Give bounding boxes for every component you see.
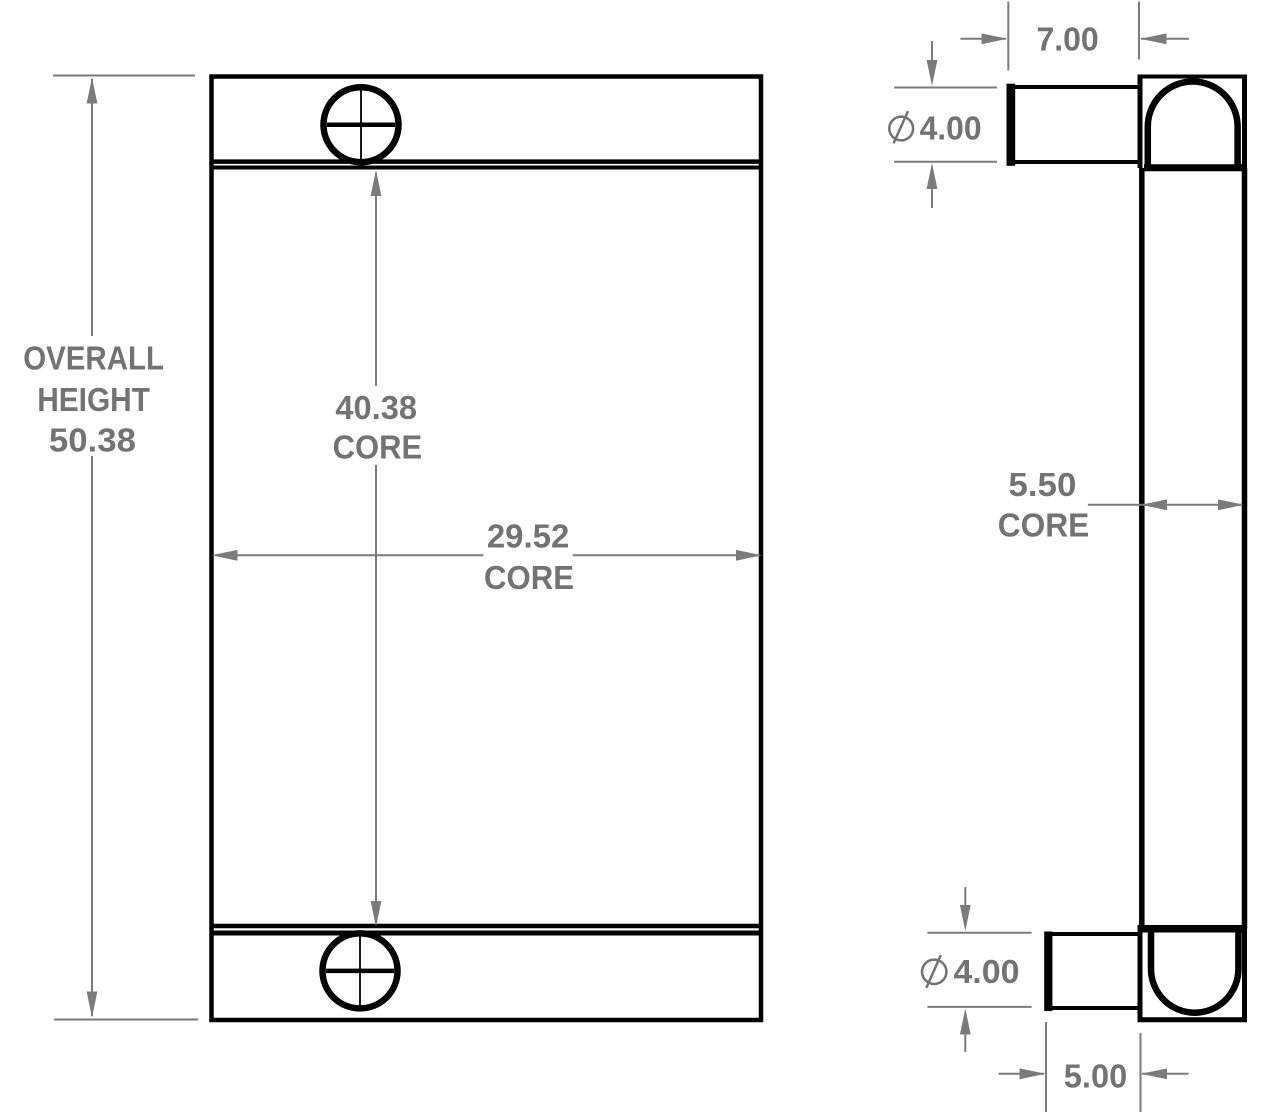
svg-text:5.50: 5.50: [1008, 466, 1076, 503]
svg-text:29.52: 29.52: [487, 518, 570, 555]
svg-text:CORE: CORE: [333, 429, 423, 466]
svg-text:7.00: 7.00: [1036, 21, 1098, 58]
svg-text:40.38: 40.38: [335, 389, 417, 426]
svg-text:OVERALL: OVERALL: [23, 340, 164, 377]
svg-text:4.00: 4.00: [920, 110, 982, 147]
svg-text:CORE: CORE: [998, 506, 1090, 543]
svg-text:50.38: 50.38: [49, 421, 136, 458]
svg-text:5.00: 5.00: [1064, 1057, 1127, 1094]
svg-text:HEIGHT: HEIGHT: [37, 381, 150, 418]
svg-text:4.00: 4.00: [953, 953, 1019, 990]
svg-text:CORE: CORE: [484, 559, 574, 596]
